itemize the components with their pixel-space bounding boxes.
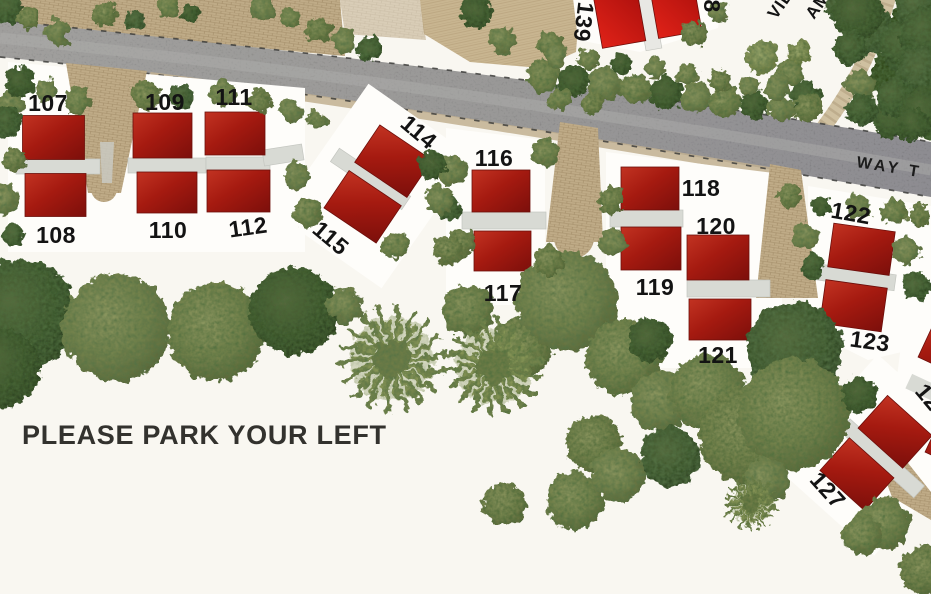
svg-text:111: 111 bbox=[215, 84, 252, 110]
svg-text:121: 121 bbox=[698, 342, 738, 368]
svg-text:PLEASE PARK YOUR LEFT: PLEASE PARK YOUR LEFT bbox=[22, 420, 387, 450]
svg-text:110: 110 bbox=[149, 217, 188, 243]
svg-text:107: 107 bbox=[28, 90, 68, 116]
svg-text:123: 123 bbox=[848, 325, 891, 356]
svg-text:108: 108 bbox=[36, 222, 76, 248]
svg-text:109: 109 bbox=[145, 89, 185, 115]
svg-text:119: 119 bbox=[636, 274, 675, 300]
svg-text:117: 117 bbox=[484, 280, 523, 306]
svg-text:112: 112 bbox=[227, 212, 269, 243]
svg-text:116: 116 bbox=[475, 145, 514, 171]
svg-text:118: 118 bbox=[682, 175, 721, 201]
svg-text:120: 120 bbox=[696, 213, 736, 239]
svg-text:139: 139 bbox=[569, 1, 600, 44]
svg-text:8: 8 bbox=[699, 0, 725, 13]
